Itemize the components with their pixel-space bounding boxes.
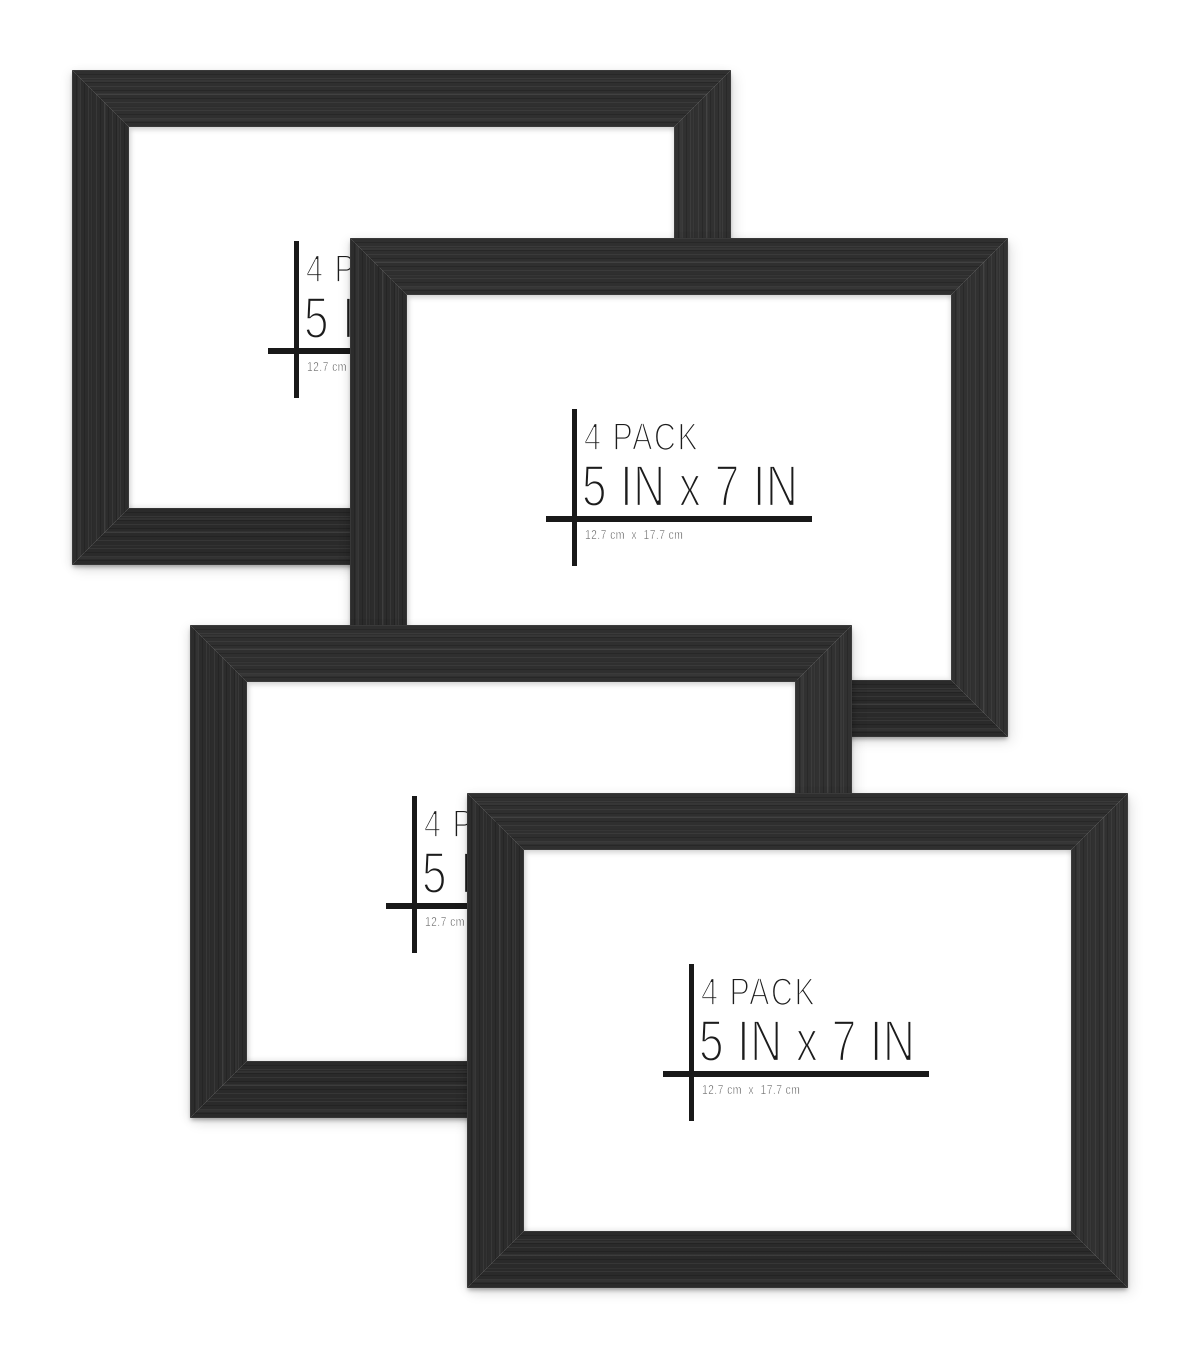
frame-border-top [72, 70, 731, 127]
frame-border-top [467, 793, 1128, 850]
frame-border-right [951, 238, 1008, 737]
frame-border-left [190, 625, 247, 1118]
crosshair-vertical-line [572, 409, 577, 566]
size-inches-text: 5 IN x 7 IN [582, 458, 799, 516]
crosshair-vertical-line [294, 241, 299, 398]
frame-border-left [467, 793, 524, 1288]
picture-frame-4: 4 PACK 5 IN x 7 IN 12.7 cm x 17.7 cm [467, 793, 1128, 1288]
product-image-canvas: { "product": { "pack_label": "4 PACK", "… [0, 0, 1200, 1360]
frame-border-top [190, 625, 852, 682]
frame-border-left [72, 70, 129, 565]
frame-border-right [1071, 793, 1128, 1288]
crosshair-vertical-line [689, 964, 694, 1121]
size-metric-text: 12.7 cm x 17.7 cm [585, 528, 683, 541]
size-metric-text: 12.7 cm x 17.7 cm [702, 1083, 800, 1096]
frame-border-top [350, 238, 1008, 295]
crosshair-vertical-line [412, 796, 417, 953]
frame-border-bottom [467, 1231, 1128, 1288]
pack-count-text: 4 PACK [701, 973, 816, 1012]
pack-count-text: 4 PACK [584, 418, 699, 457]
size-inches-text: 5 IN x 7 IN [699, 1013, 916, 1071]
